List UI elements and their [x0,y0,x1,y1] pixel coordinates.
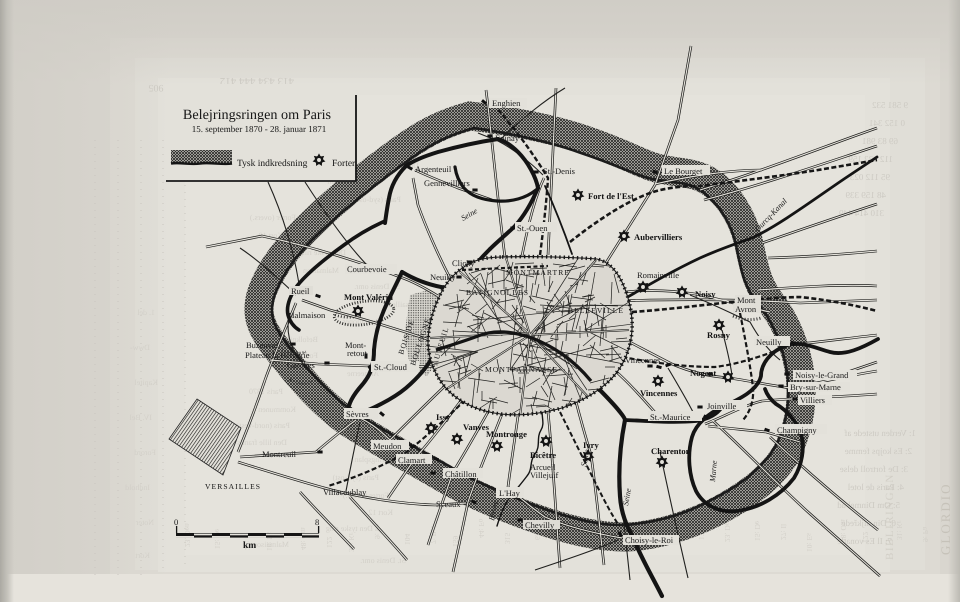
svg-text:Fort de l'Est: Fort de l'Est [588,191,634,201]
svg-text:Indhold: Indhold [125,483,150,492]
svg-text:St. Denis omr.: St. Denis omr. [360,556,406,565]
svg-text:Romainville: Romainville [637,270,679,280]
svg-text:Ivry: Ivry [583,440,599,450]
svg-text:Le Bourget: Le Bourget [664,166,703,176]
svg-text:8: 8 [315,517,319,527]
svg-text:Den lille frands: Den lille frands [237,438,287,447]
svg-text:Sceaux: Sceaux [436,499,461,509]
svg-text:BIBLIRINGEN: BIBLIRINGEN [884,473,896,560]
svg-text:Meudon: Meudon [373,441,402,451]
svg-text:10: Es: 10: Es [805,533,814,552]
svg-text:St.-Maurice: St.-Maurice [650,412,691,422]
svg-text:BATIGNOLLES: BATIGNOLLES [466,288,529,297]
svg-text:Bry-sur-Marne: Bry-sur-Marne [790,382,841,392]
svg-text:1: Verden utstede af: 1: Verden utstede af [844,428,916,438]
svg-text:15. september 1870 - 28. janua: 15. september 1870 - 28. januar 1871 [192,124,326,134]
svg-text:IV. Bel: IV. Bel [129,413,152,422]
svg-text:Montreuil: Montreuil [262,449,297,459]
svg-text:Nogent: Nogent [690,368,716,378]
svg-text:km: km [243,541,256,551]
svg-text:Paris (nord-vest): Paris (nord-vest) [236,421,290,430]
svg-text:Aubervilliers: Aubervilliers [634,232,683,242]
svg-text:Forter: Forter [332,159,356,169]
svg-text:Champigny: Champigny [777,425,817,435]
svg-text:69 83 981: 69 83 981 [862,136,898,146]
svg-text:48: Om: 48: Om [839,519,848,542]
svg-text:Kommunen: Kommunen [258,405,296,414]
svg-text:15: De: 15: De [213,528,222,549]
svg-text:Vincennes: Vincennes [625,355,660,365]
svg-text:MONTMARTRE: MONTMARTRE [506,268,570,277]
svg-text:Tysk indkredsning: Tysk indkredsning [237,159,308,169]
svg-text:Rueil: Rueil [291,286,310,296]
svg-text:0: 0 [174,517,178,527]
svg-text:Forter (overs.): Forter (overs.) [249,213,296,222]
svg-text:Sèvres: Sèvres [346,409,369,419]
svg-text:Issy: Issy [436,412,451,422]
svg-text:Épinay: Épinay [495,133,520,143]
svg-text:Noter: Noter [135,518,154,527]
svg-text:Vincennes: Vincennes [640,388,678,398]
svg-text:Neuilly: Neuilly [756,337,782,347]
svg-text:27: Il: 27: Il [779,524,788,540]
svg-text:Choisy-le-Roi: Choisy-le-Roi [625,535,674,545]
svg-text:122: 122 [325,537,334,549]
svg-text:Charenton: Charenton [651,446,691,456]
svg-text:Buzenval: Buzenval [246,340,279,350]
svg-text:St.-Denis: St.-Denis [543,166,575,176]
svg-text:Clamart: Clamart [398,455,426,465]
svg-text:Noisy: Noisy [695,289,716,299]
svg-text:Villacoublay: Villacoublay [323,487,367,497]
svg-text:Argenteuil: Argenteuil [415,164,452,174]
svg-text:Kort 12: Kort 12 [368,508,393,517]
svg-text:Rosny: Rosny [707,330,731,340]
svg-text:L'Hay: L'Hay [499,488,521,498]
svg-text:Noisy-le-Grand: Noisy-le-Grand [795,370,849,380]
svg-text:44: Fo: 44: Fo [477,518,486,538]
svg-text:Châtillon: Châtillon [445,469,477,479]
svg-text:15: De: 15: De [753,520,762,541]
svg-text:St.-Cloud: St.-Cloud [374,362,408,372]
svg-text:315: 315 [503,533,512,545]
svg-text:104: 104 [403,534,412,546]
svg-text:Dww-: Dww- [130,343,150,352]
svg-text:Clichy: Clichy [452,258,475,268]
svg-text:Garches: Garches [287,360,315,370]
svg-text:3: De fortroll delse: 3: De fortroll delse [840,464,908,474]
svg-text:9 581 532: 9 581 532 [872,100,908,110]
svg-text:Belejringsringen om Paris: Belejringsringen om Paris [183,107,332,123]
svg-text:Kapitel: Kapitel [134,378,158,387]
svg-text:Avron: Avron [735,304,757,314]
svg-text:Villejuif: Villejuif [530,470,558,480]
svg-text:Villiers: Villiers [800,395,825,405]
svg-text:9: Pa: 9: Pa [921,526,930,542]
svg-text:St.-Ouen: St.-Ouen [517,223,548,233]
svg-text:Joinville: Joinville [707,401,737,411]
svg-text:MONTPARNASSE: MONTPARNASSE [485,365,558,374]
svg-text:1. del: 1. del [136,308,155,317]
svg-text:Enghien: Enghien [492,98,521,108]
svg-text:retout: retout [347,348,367,358]
svg-text:Bicêtre: Bicêtre [530,450,556,460]
svg-text:Neuilly: Neuilly [430,272,456,282]
svg-text:Paris 1870: Paris 1870 [249,387,283,396]
svg-text:Forord: Forord [134,448,156,457]
svg-text:Malmaison: Malmaison [287,310,326,320]
svg-text:Courbevoie: Courbevoie [347,264,387,274]
svg-text:GLORDIO: GLORDIO [938,483,953,556]
svg-text:122: 122 [861,532,870,544]
svg-text:31: Kr: 31: Kr [895,520,904,540]
svg-text:BELLEVILLE: BELLEVILLE [568,306,624,315]
svg-text:Montrouge: Montrouge [486,429,527,439]
svg-text:VERSAILLES: VERSAILLES [205,482,261,491]
svg-text:2: Es kojps femme: 2: Es kojps femme [845,446,912,456]
svg-text:Mont Valérin: Mont Valérin [344,292,393,302]
svg-text:Kort: Kort [135,551,150,560]
svg-text:0 152 341: 0 152 341 [869,118,905,128]
svg-text:Plateau la Bergerie: Plateau la Bergerie [245,350,310,360]
svg-text:Vanves: Vanves [463,422,490,432]
svg-text:Chevilly: Chevilly [525,520,555,530]
svg-text:95 112 023: 95 112 023 [849,172,890,182]
svg-text:48: Om: 48: Om [299,527,308,550]
svg-text:Gennevilliers: Gennevilliers [424,178,470,188]
svg-text:48 159 339: 48 159 339 [845,190,886,200]
